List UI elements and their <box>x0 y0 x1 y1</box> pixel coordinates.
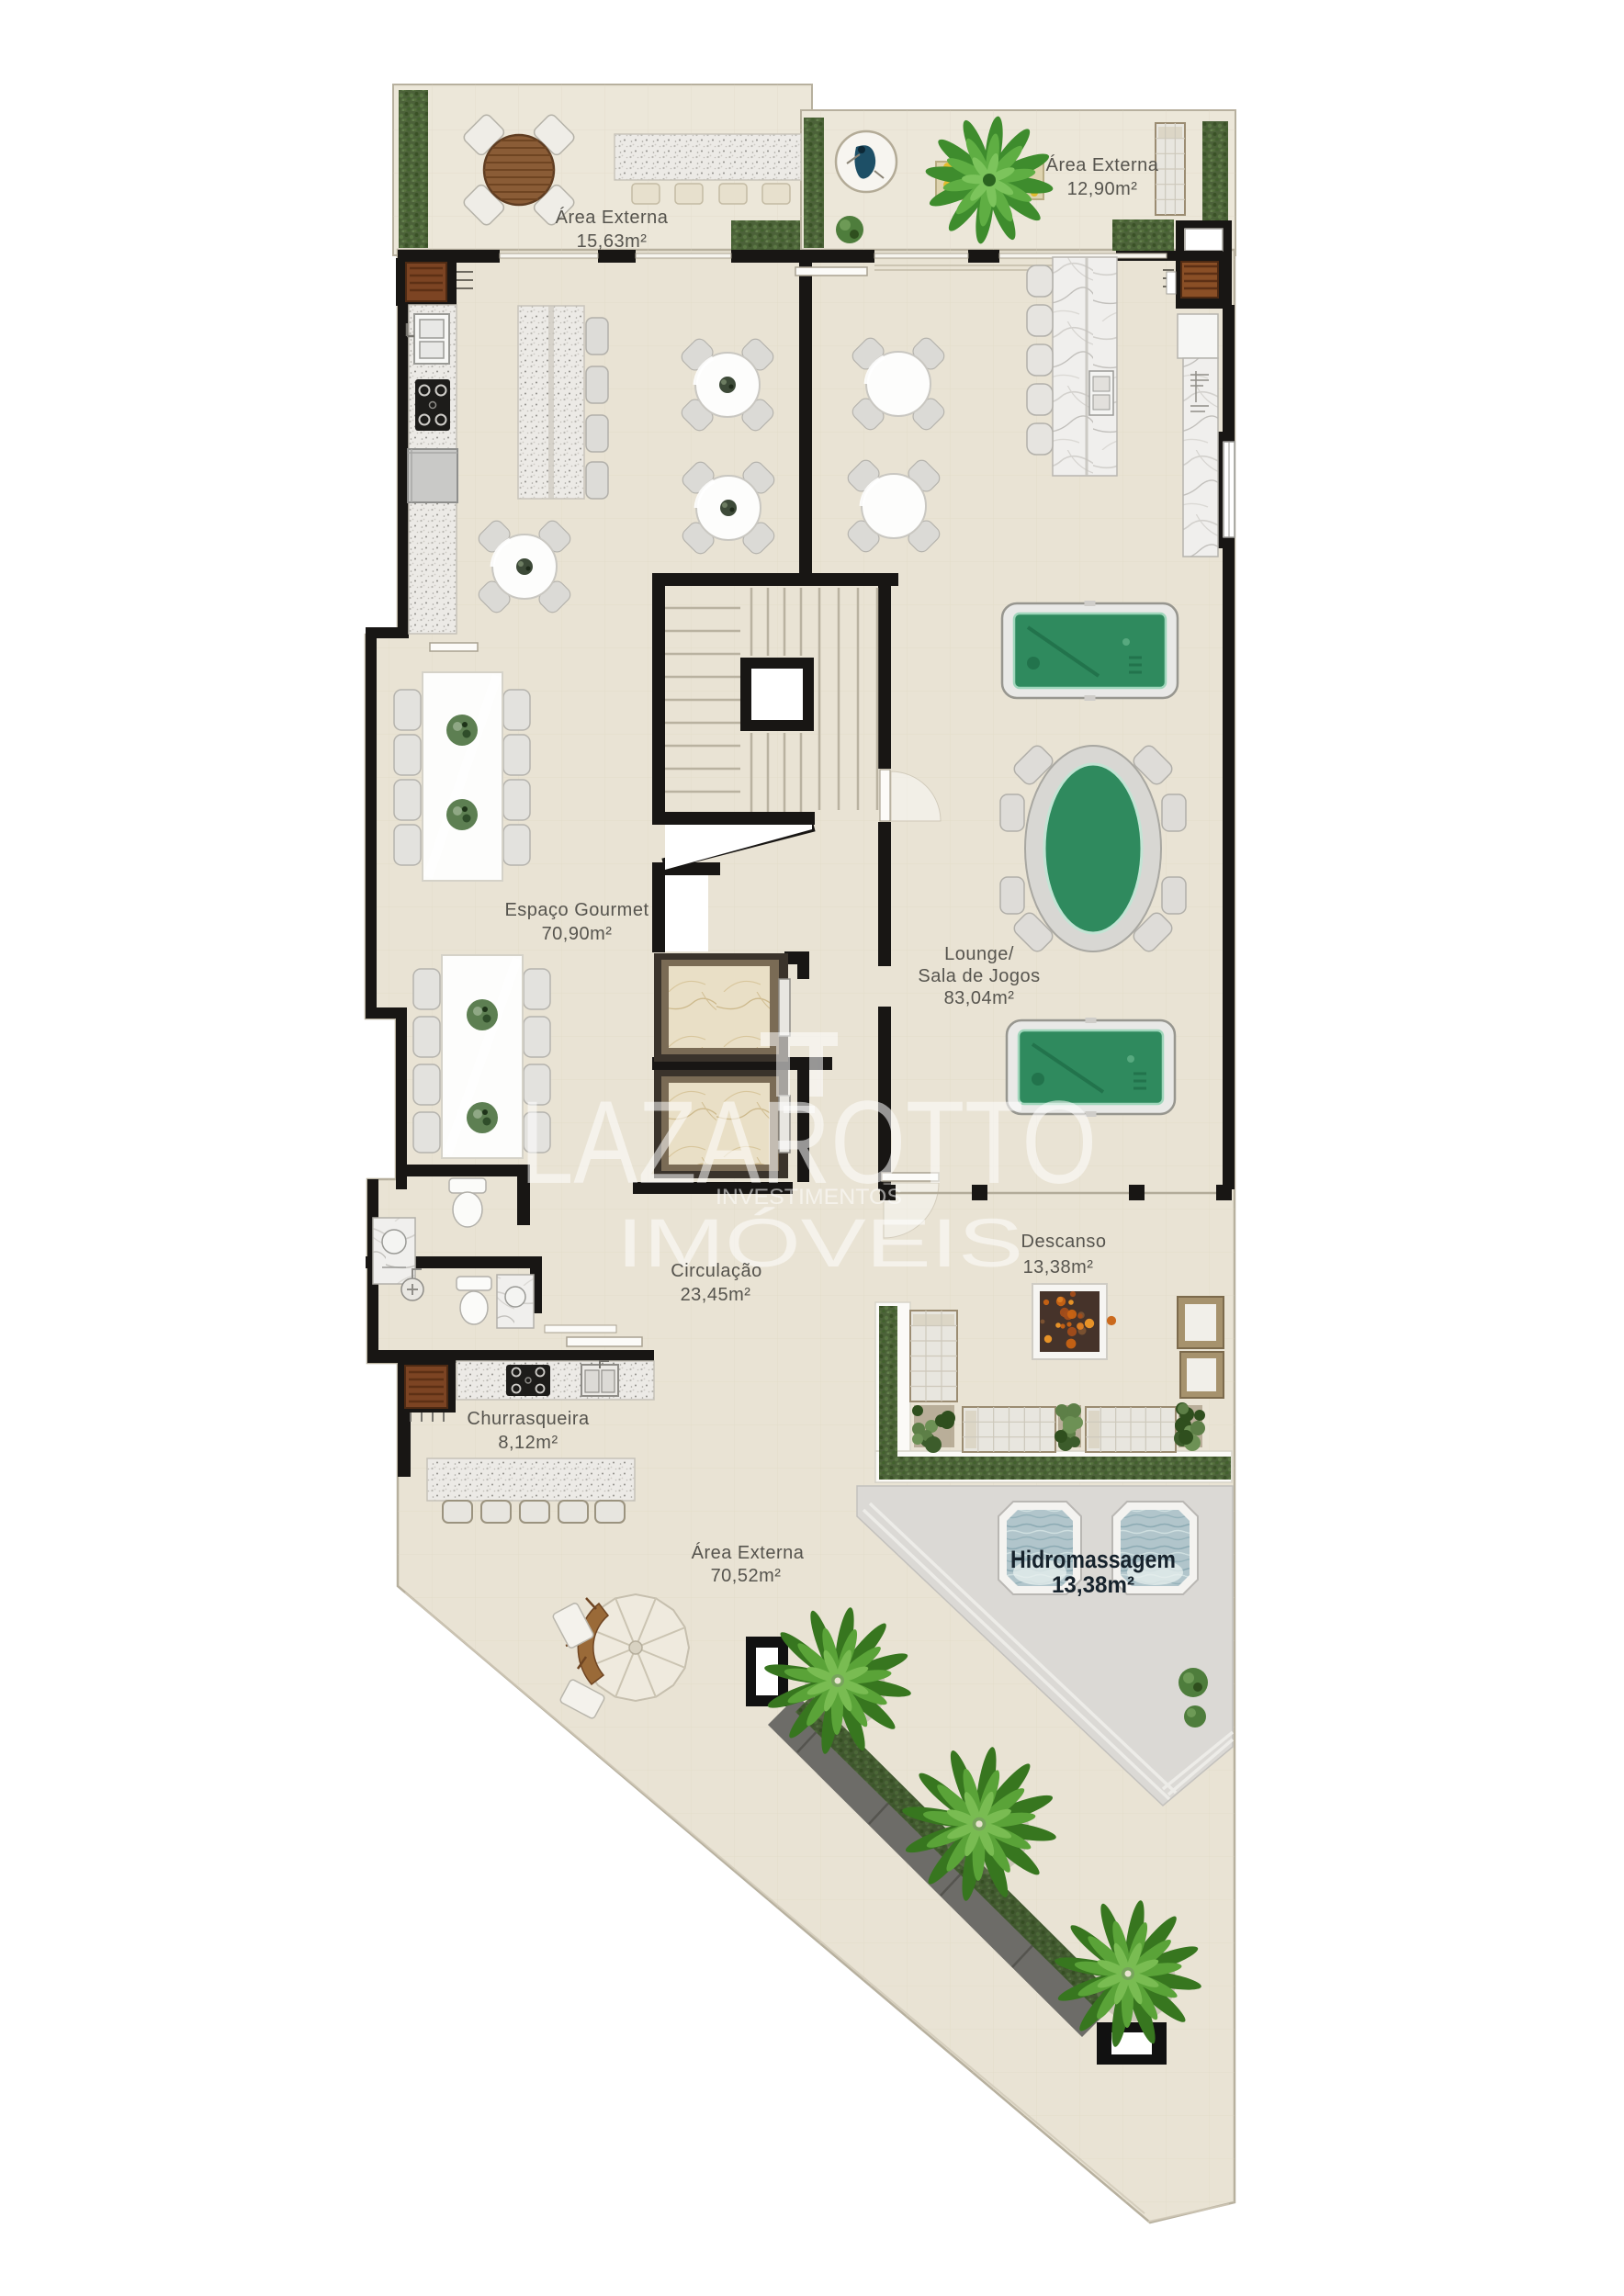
svg-text:Espaço Gourmet: Espaço Gourmet <box>504 900 648 920</box>
svg-text:Sala de Jogos: Sala de Jogos <box>918 966 1040 986</box>
svg-text:Churrasqueira: Churrasqueira <box>467 1409 590 1429</box>
svg-text:83,04m²: 83,04m² <box>944 988 1015 1008</box>
svg-text:Área Externa: Área Externa <box>1046 154 1159 175</box>
svg-text:70,52m²: 70,52m² <box>711 1566 782 1586</box>
svg-text:Circulação: Circulação <box>671 1261 761 1281</box>
svg-text:Descanso: Descanso <box>1021 1232 1107 1252</box>
svg-text:13,38m²: 13,38m² <box>1023 1257 1094 1277</box>
svg-text:12,90m²: 12,90m² <box>1067 179 1138 199</box>
svg-text:8,12m²: 8,12m² <box>498 1433 558 1453</box>
svg-text:Lounge/: Lounge/ <box>944 944 1014 964</box>
svg-text:70,90m²: 70,90m² <box>542 924 613 944</box>
svg-text:23,45m²: 23,45m² <box>681 1285 751 1305</box>
svg-text:15,63m²: 15,63m² <box>577 231 648 252</box>
svg-text:Área Externa: Área Externa <box>692 1542 805 1563</box>
svg-text:Área Externa: Área Externa <box>556 207 669 228</box>
svg-text:Hidromassagem: Hidromassagem <box>1010 1546 1176 1573</box>
svg-text:13,38m²: 13,38m² <box>1052 1572 1134 1598</box>
